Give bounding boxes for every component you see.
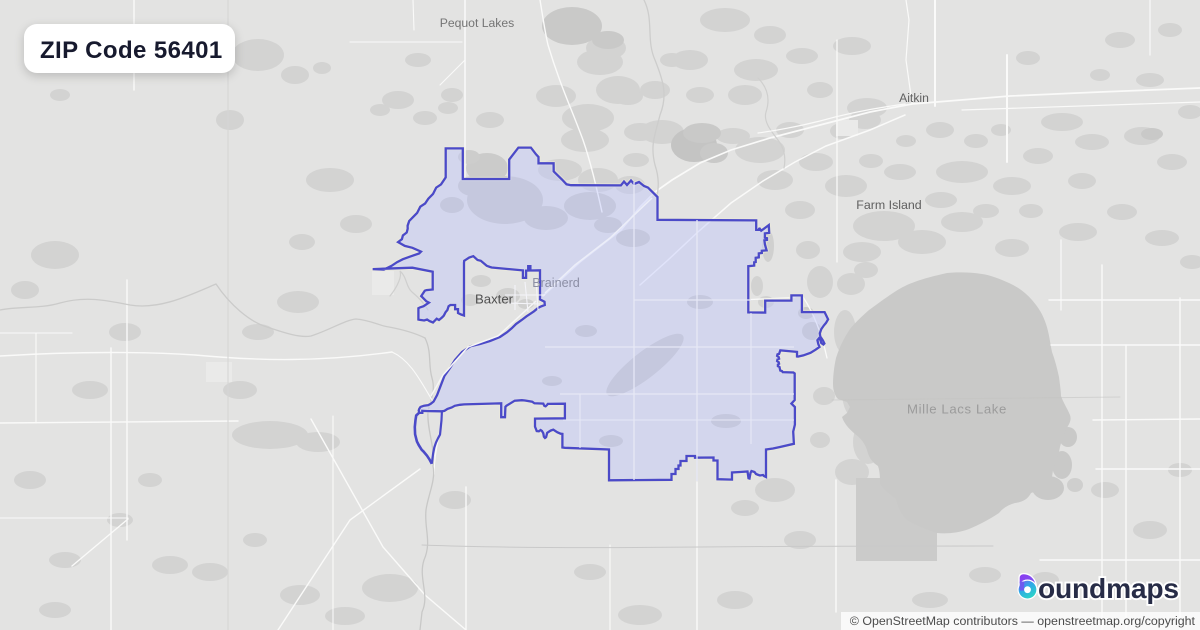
svg-text:Mille Lacs Lake: Mille Lacs Lake — [907, 402, 1007, 417]
svg-text:Farm Island: Farm Island — [856, 198, 922, 212]
svg-text:Brainerd: Brainerd — [532, 276, 580, 290]
svg-text:Baxter: Baxter — [475, 292, 514, 307]
svg-text:Pequot Lakes: Pequot Lakes — [440, 16, 515, 30]
svg-text:Aitkin: Aitkin — [899, 91, 929, 105]
svg-text:oundmaps: oundmaps — [1038, 572, 1179, 604]
